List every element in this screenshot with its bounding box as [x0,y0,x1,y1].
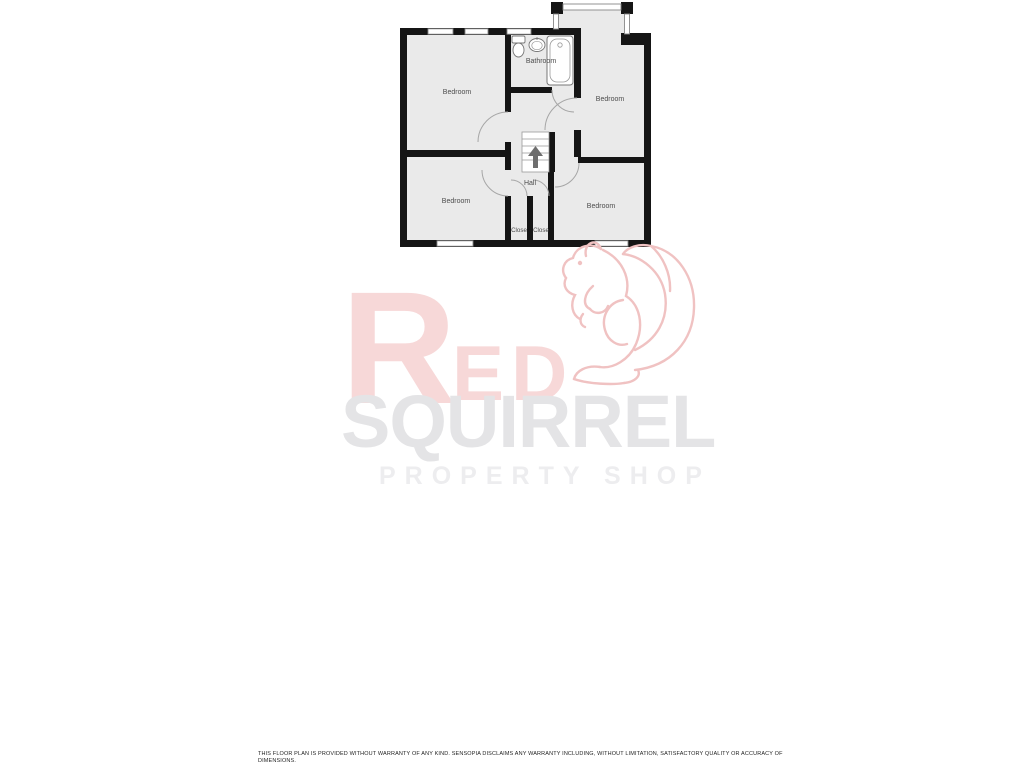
room-label-bedroom-bottom-left: Bedroom [442,198,471,205]
room-label-bedroom-top-right: Bedroom [596,96,625,103]
bay-window-post-left [551,2,563,14]
floor-plan-page: Bedroom Bedroom Bedroom Bedroom Bathroom… [0,0,1024,768]
wall-right [644,33,651,247]
room-label-closet-left: Close [511,227,527,234]
room-label-bedroom-top-left: Bedroom [443,89,472,96]
window-icon [595,241,628,246]
disclaimer-line-2: DIMENSIONS. [258,758,798,765]
bay-window-front [563,4,621,10]
wall-left-bedrooms-divider [407,150,511,157]
stairs [522,132,549,172]
floor-plan: Bedroom Bedroom Bedroom Bedroom Bathroom… [0,0,1024,768]
wall-hall-west-lower [505,196,511,247]
wall-stub [574,130,581,157]
wall-right-bedrooms-divider [578,157,644,163]
bay-window-side-left [554,14,559,29]
wall-hall-west-upper [505,35,511,112]
toilet-icon [512,36,525,57]
window-icon [437,241,473,246]
wall-bathroom-south [505,87,552,93]
room-label-bedroom-bottom-right: Bedroom [587,203,616,210]
window-icon [465,29,488,34]
wall-left [400,28,407,247]
room-label-bathroom: Bathroom [526,58,557,65]
bay-window-side-right [625,14,630,34]
window-icon [507,29,531,34]
window-icon [428,29,453,34]
disclaimer-text: THIS FLOOR PLAN IS PROVIDED WITHOUT WARR… [258,751,798,765]
wall-bathroom-east [574,35,581,98]
room-label-hall: Hall [524,180,537,187]
room-label-closet-right: Close [533,227,549,234]
bay-window-post-right [621,2,633,14]
disclaimer-line-1: THIS FLOOR PLAN IS PROVIDED WITHOUT WARR… [258,751,798,758]
